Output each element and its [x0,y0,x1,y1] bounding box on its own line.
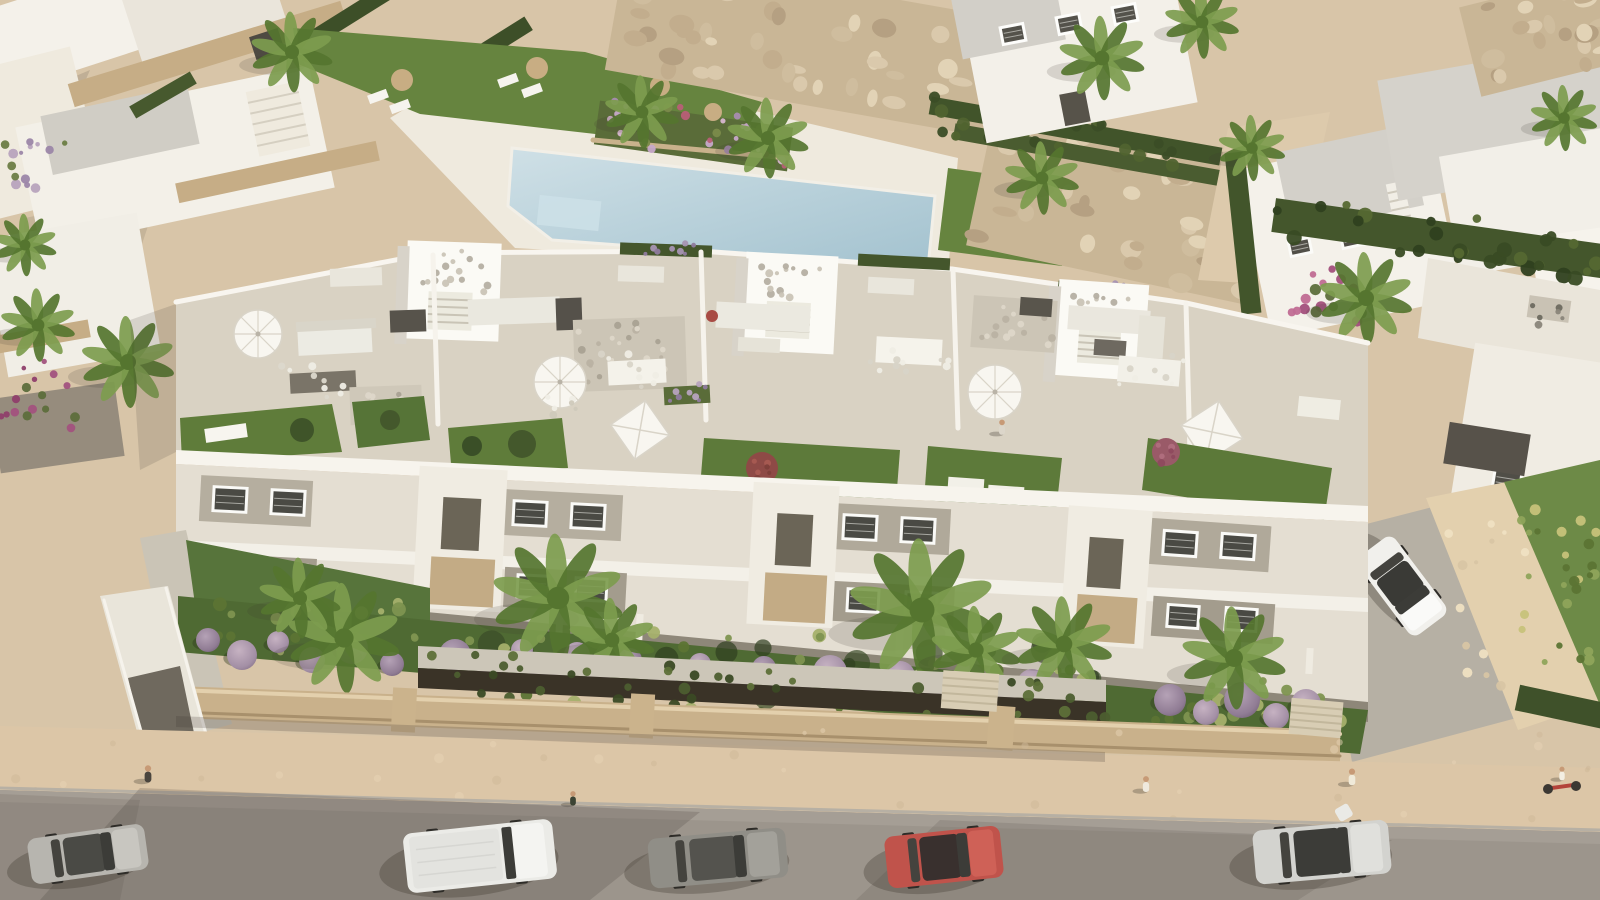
lavender-ball-shrubs [1193,699,1219,725]
bougainvillea [22,366,27,371]
bougainvillea [1310,284,1321,295]
wild-grass [1562,552,1569,559]
storage-box [390,309,427,332]
stair-opening [441,497,482,551]
gravel-texture [617,341,621,345]
planter-lavender [677,248,684,255]
sidewalk-texture [1452,760,1456,764]
wild-grass [1519,626,1526,633]
roof-sofa [330,267,383,287]
flower-bed [26,138,33,145]
chairs [893,362,900,369]
wild-grass [1526,530,1532,536]
gravel-texture [586,359,594,367]
sidewalk-texture [1528,815,1535,822]
wild-grass [1563,564,1570,571]
parked-hatchback-gray-hood [746,831,780,877]
gravel-texture [1003,333,1010,340]
sofa [297,328,372,356]
roof-sofa [868,277,915,295]
chairs [625,350,633,358]
flower-bed [35,142,40,147]
sidewalk-texture [802,731,806,735]
planter-lavender [643,252,647,256]
grass-tufts [411,633,418,640]
bougainvillea [23,411,32,420]
gravel-texture [610,336,615,341]
gravel-texture [614,322,621,329]
planter-lavender [654,249,660,255]
chairs [889,347,896,354]
chairs [1117,382,1121,386]
chairs [325,395,330,400]
wild-grass [1569,576,1580,587]
sidewalk-texture [820,728,825,733]
planter-flowers [673,388,680,395]
chairs [903,368,909,374]
parked-sedan-silver-hood [1350,823,1384,873]
red-shrub-texture [764,464,769,469]
gravel-texture [993,323,1000,330]
sidewalk-texture [1336,739,1342,745]
gravel-texture [991,331,998,338]
palm-tree-crown [1358,290,1374,306]
garden-palm-crown [547,587,569,609]
chairs [1181,358,1186,363]
sidewalk-texture [490,741,497,748]
sofa [1137,315,1166,359]
chairs [552,406,558,412]
aerial-architectural-render [0,0,1600,900]
palm-tree-crown [1196,16,1209,29]
wild-grass [1557,527,1567,537]
shrub [508,430,536,458]
wild-grass [1542,659,1548,665]
apartment-windows-glass [214,488,245,511]
wild-grass [1576,655,1584,663]
planter-flowers [676,394,682,400]
sidewalk-texture [492,776,501,785]
red-shrub-texture [767,471,771,475]
roof-sofa [618,265,665,283]
flower-bed [7,162,16,171]
entrance-stairs [1289,698,1344,738]
coffee-table [1093,339,1126,357]
path-stones [1462,668,1472,678]
grass-tufts [1281,685,1292,696]
wild-grass [1587,572,1593,578]
chairs [606,356,611,361]
pedestrian-head [145,765,151,771]
grass-tufts [228,611,236,619]
grass-tufts [816,633,825,642]
bougainvillea [42,406,49,413]
person-on-roof-head [999,420,1005,426]
grass-tufts [378,608,384,614]
wild-grass [1561,582,1567,588]
chairs [945,358,951,364]
gravel-texture [655,339,660,344]
flower-bed [1,140,10,149]
flower-bed [24,182,30,188]
gravel-texture [365,392,372,399]
round-parasol-pole [558,380,563,385]
sidewalk-texture [651,761,657,767]
gravel-texture [635,326,640,331]
sidewalk-texture [1586,766,1591,771]
grass-tufts [226,631,236,641]
terrace-chairs [1555,309,1560,314]
chairs [868,359,873,364]
cyclist-body [1559,772,1564,781]
chairs [598,351,605,358]
flower-bed [19,151,23,155]
chairs [636,374,642,380]
chairs [627,361,633,367]
gravel-texture [596,341,601,346]
gravel-texture [1048,334,1056,342]
flower-bed [62,140,67,145]
lavender-ball-shrubs [227,640,257,670]
flower-bed [8,149,18,159]
chairs [1170,382,1174,386]
gravel-texture [1002,316,1009,323]
flower-bed [11,179,21,189]
palm-tree-crown [636,106,649,119]
apartment-windows-glass [844,516,875,539]
apartment-windows-glass [572,505,603,528]
shrub [380,410,400,430]
wild-grass [1517,516,1526,525]
bougainvillea [22,383,31,392]
gravel-texture [632,320,639,327]
chairs [549,411,557,419]
pedestrian-body [145,772,152,783]
terrace-chairs [1535,321,1543,329]
path-stones [1479,649,1488,658]
sidewalk-texture [540,754,547,761]
sidewalk-texture [276,771,283,778]
sidewalk-texture [730,750,739,759]
sidewalk-texture [1330,745,1338,753]
palm-tree-crown [1036,172,1049,185]
chairs [939,358,943,362]
bougainvillea [1328,265,1335,272]
planter-flowers [692,393,699,400]
person-on-roof-body [999,425,1005,435]
wild-grass [1520,610,1529,619]
garden-palm-crown [1225,649,1243,667]
wild-grass [1584,539,1595,550]
chairs [1132,375,1138,381]
wild-grass [1526,573,1532,579]
chairs [287,368,292,373]
chairs [545,395,550,400]
grass-tufts [725,635,732,642]
sidewalk-texture [374,775,381,782]
apartment-windows-glass [514,502,545,525]
coffee-table [738,337,781,353]
gravel-texture [597,374,602,379]
garden-palm-crown [334,628,353,647]
sidewalk-texture [1534,742,1543,751]
bougainvillea [32,377,37,382]
chairs [1162,374,1169,381]
chairs [569,400,574,405]
garden-palm-crown [605,633,620,648]
path-stones [1488,520,1495,527]
sidewalk-texture [434,753,444,763]
bougainvillea [1301,294,1311,304]
chairs [639,385,644,390]
bougainvillea [50,370,58,378]
palm-tree-crown [1558,112,1570,124]
dining-table-white [607,358,666,385]
sidewalk-texture [1021,742,1028,749]
grass-tufts [392,602,406,616]
wall-pillar [629,693,655,738]
path-stones [1444,529,1453,538]
sidewalk-texture [198,776,204,782]
pedestrian-body [570,796,576,805]
straw-parasol [391,69,413,91]
garden-palm-crown [968,642,983,657]
chairs [321,385,327,391]
sidewalk-texture [1334,794,1342,802]
gravel-texture [1017,321,1024,328]
chairs [278,363,285,370]
pink-shrub-texture [1168,448,1173,453]
apartment-windows-glass [1222,535,1253,558]
bougainvillea [70,412,80,422]
grass-tufts [213,597,227,611]
sidewalk-texture [1177,789,1182,794]
grass-tufts [678,641,689,652]
wild-grass [1530,504,1541,515]
chairs [900,360,906,366]
stair-opening [775,513,814,567]
garden-palm-crown [910,598,935,623]
bougainvillea [1293,307,1301,315]
path-stones [1456,604,1465,613]
terrace-chairs [1537,315,1543,321]
path-stones [1484,672,1490,678]
stone-accent [429,556,495,607]
terrace-chairs [1530,303,1535,308]
chairs [651,380,657,386]
flower-bed [11,173,19,181]
planter-flowers [668,399,672,403]
lavender-ball-shrubs [196,628,220,652]
path-stones [1474,560,1478,564]
sidewalk-texture [781,768,786,773]
pedestrian-head [570,791,575,796]
sofa [468,296,561,325]
lavender-ball-shrubs [1263,703,1289,729]
garden-palm-crown [293,591,307,605]
gravel-texture [979,335,984,340]
planter-lavender [669,246,675,252]
bicycle-wheel [1571,781,1581,791]
chairs [338,391,344,397]
sidewalk-texture [11,774,20,783]
pedestrian-head [1349,769,1355,775]
chairs [877,368,883,374]
gravel-texture [1011,312,1016,317]
parked-sedan-silver-roof-glass [1293,827,1343,877]
apartment-windows-glass [1164,532,1195,555]
chairs [636,367,641,372]
red-shrub-texture [752,459,757,464]
round-parasol-pole [993,390,998,395]
parked-van-white-hood [510,822,548,879]
straw-parasol [704,103,722,121]
path-stones [1496,681,1506,691]
grass-tufts [465,636,474,645]
stair-opening [1086,537,1123,589]
gravel-texture [578,346,586,354]
sidewalk-texture [110,741,116,747]
bougainvillea [38,391,46,399]
gravel-texture [576,329,582,335]
gravel-texture [1021,330,1027,336]
pink-shrub-texture [1171,455,1175,459]
apartment-windows-glass [272,491,303,514]
parked-car-red-roof-glass [919,833,963,881]
flower-bed [21,174,30,183]
sidewalk-texture [1400,811,1407,818]
entrance-stairs [941,670,1000,712]
flower-pot [706,310,718,322]
path-stones [1462,642,1470,650]
palm-tree-crown [1246,142,1258,154]
chairs [340,383,347,390]
shrub [290,418,314,442]
chairs [308,362,316,370]
pedestrian-body [1349,775,1356,786]
lavender-ball-shrubs [1154,684,1186,716]
bougainvillea [1310,271,1317,278]
sofa [715,302,810,333]
stone-accent [763,572,827,623]
pink-shrub-texture [1159,454,1165,460]
path-stones [1458,560,1468,570]
parked-hatchback-gray-roof-glass [689,835,739,881]
wall-pillar [986,705,1015,751]
chairs [1169,353,1175,359]
bougainvillea [12,395,20,403]
palm-tree-crown [32,319,45,332]
terrace-chairs [1560,316,1564,320]
gravel-texture [1045,341,1052,348]
palm-tree-crown [1095,51,1110,66]
path-stones [1502,530,1507,535]
soil-patches [754,639,771,656]
grass-tufts [795,655,805,665]
planter-flowers [687,390,693,396]
gravel-texture [626,335,632,341]
sidewalk-texture [60,781,67,788]
chairs [321,378,326,383]
sidewalk-texture [1537,732,1543,738]
pink-shrub-texture [1156,443,1161,448]
planter-flowers [696,381,702,387]
chairs [1152,368,1158,374]
sidewalk-texture [896,801,904,809]
dining-table-white [875,336,942,365]
wild-grass [1584,647,1593,656]
gravel-texture [660,347,666,353]
chairs [311,373,317,379]
planter-lavender [682,240,688,246]
wild-grass [1562,599,1572,609]
planter-flowers [703,385,708,390]
palm-tree-crown [285,45,299,59]
wild-grass [1556,642,1562,648]
shrub [462,436,482,456]
bougainvillea [3,411,9,417]
wild-grass [1576,516,1586,526]
garden-palm-crown [1056,636,1073,653]
apartment-windows-glass [1168,606,1197,627]
bougainvillea [11,408,20,417]
storage-box [1019,297,1052,317]
red-shrub-texture [755,470,761,476]
chairs [652,372,659,379]
pillar [1305,648,1313,674]
chairs [574,407,578,411]
scene-svg [0,0,1600,900]
straw-parasol [526,57,548,79]
flower-bed [45,146,53,154]
path-stones [1489,539,1494,544]
bougainvillea [67,424,76,433]
pedestrian-with-bags-body [1143,782,1149,792]
sidewalk-texture [1116,729,1123,736]
bougainvillea [64,382,71,389]
gravel-texture [1001,305,1005,309]
round-parasol-pole [256,332,261,337]
bicycle-wheel [1543,784,1553,794]
palm-tree-crown [20,240,31,251]
cyclist-head [1559,767,1564,772]
pedestrian-with-bags-head [1143,776,1149,782]
path-stones [1521,548,1529,556]
planter-lavender [691,243,696,248]
parked-suv-silver-hood [111,827,142,870]
parked-car-red-hood [967,829,997,877]
palm-tree-crown [761,131,775,145]
gravel-texture [984,333,990,339]
flower-bed [31,183,41,193]
sidewalk-texture [594,754,603,763]
pink-shrub-texture [1157,459,1165,467]
pink-shrub [1152,438,1180,466]
soil-patches [716,641,738,663]
chairs [1127,365,1134,372]
wild-grass [1534,528,1540,534]
sidewalk-texture [1031,800,1040,809]
